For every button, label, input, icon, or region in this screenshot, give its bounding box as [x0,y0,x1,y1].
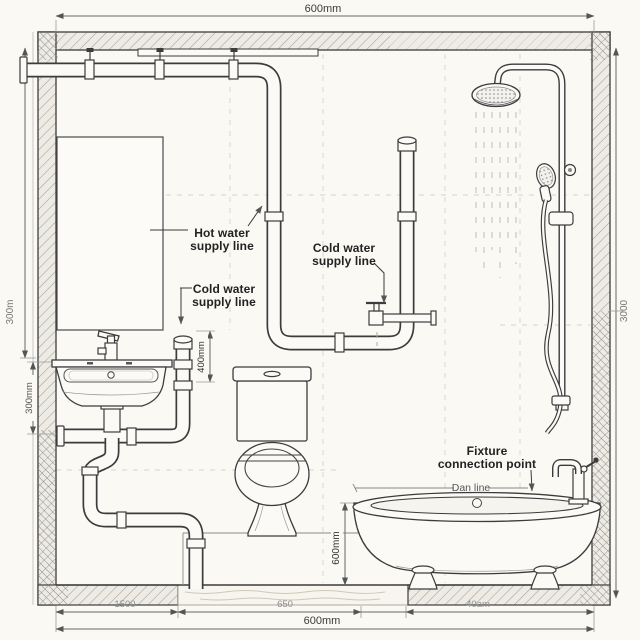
dim-bottom-width: 600mm [282,615,362,627]
wall-corner-hatch [590,32,610,60]
wall-top-light-section [390,33,609,49]
label-line: supply line [174,296,274,309]
sink-faucet [105,343,117,361]
sink [52,331,172,406]
wall-corner-hatch [38,32,58,60]
toilet-flush-button [264,371,280,376]
dim-bottom-seg-1: 1500 [95,599,155,611]
floor-slab-corner [38,585,68,605]
wall-left-dense-hatch [38,430,56,605]
dim-left-outer-height: 300m [5,290,17,334]
dim-bottom-seg-2: 650 [255,599,315,611]
sink-drain-hole [108,372,114,378]
dim-top-width: 600mm [283,3,363,15]
dim-bottom-seg-3: 40am [448,599,508,611]
label-line: connection point [427,458,547,471]
dim-right-height: 3000 [619,291,631,331]
sink-tailpiece [104,406,120,432]
bathtub [353,457,601,589]
tub-platform [408,585,610,605]
label-drain-line: Dan line [441,482,501,494]
label-line: supply line [294,255,394,268]
tub-foot [531,573,559,589]
shower-riser-pipe [497,67,562,405]
shower [472,67,576,433]
dim-tub-height: 600mm [331,523,343,573]
floor-slab-corner [580,585,610,605]
mirror-panel [57,137,163,330]
diagram-linework [0,0,640,640]
tub-foot [409,573,437,589]
toilet [233,367,311,536]
plumbing-diagram: Hot water supply line Cold water supply … [0,0,640,640]
ceiling-ledge [138,49,318,56]
dim-supply-drop: 400mm [196,334,208,380]
toilet-tank [237,381,307,441]
label-cold-water-supply-mid: Cold water supply line [294,242,394,268]
label-fixture-connection-point: Fixture connection point [427,445,547,471]
slider-clamp [549,212,573,225]
dim-left-inner-height: 300mm [24,375,36,421]
label-cold-water-supply-left: Cold water supply line [174,283,274,309]
label-line: supply line [172,240,272,253]
tub-overflow-hole [473,499,482,508]
label-hot-water-supply: Hot water supply line [172,227,272,253]
